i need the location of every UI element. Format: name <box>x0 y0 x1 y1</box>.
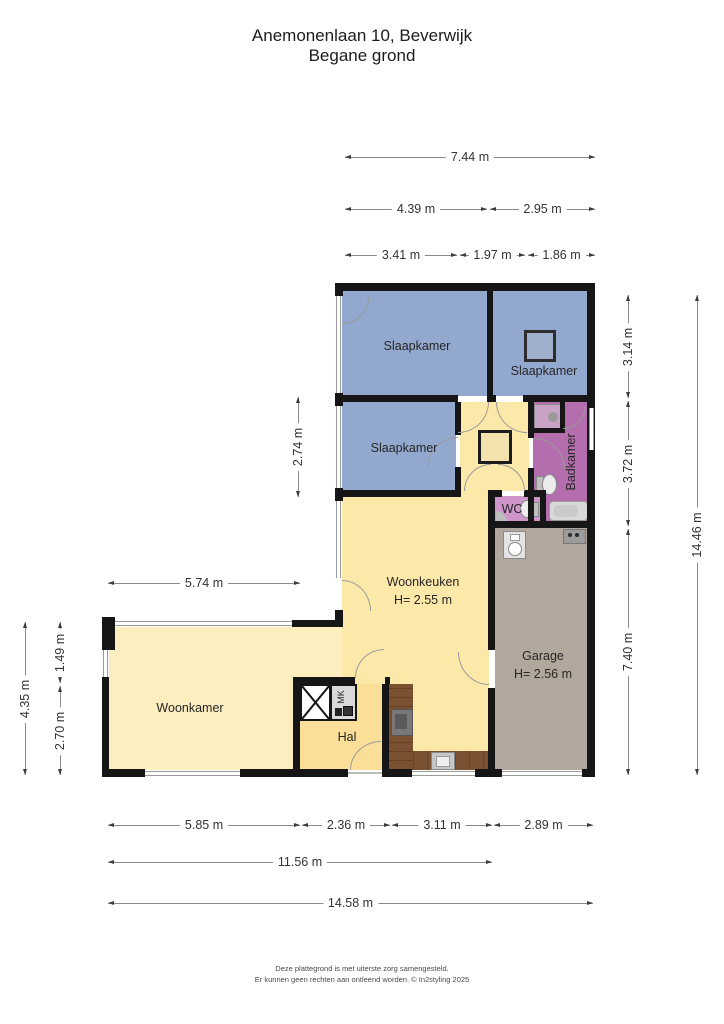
window <box>336 296 341 393</box>
dim-bottom-woonkamer: 5.85 m <box>108 817 300 833</box>
title-floor: Begane grond <box>0 46 724 66</box>
wall <box>587 283 595 777</box>
wall <box>102 677 109 777</box>
wall <box>488 490 495 650</box>
dim-top-bath: 1.86 m <box>528 247 595 263</box>
dim-left-lower: 2.70 m <box>52 686 68 775</box>
dim-bottom-total: 14.58 m <box>108 895 593 911</box>
label-slaapkamer-3: Slaapkamer <box>371 441 438 455</box>
wall <box>528 402 534 438</box>
wall <box>523 395 595 402</box>
label-garage: Garage <box>522 649 564 663</box>
title-address: Anemonenlaan 10, Beverwijk <box>0 26 724 46</box>
wall <box>382 769 412 777</box>
stove-icon <box>391 709 413 736</box>
label-mk: MK <box>336 690 346 704</box>
label-wc: WC <box>502 502 523 516</box>
window <box>336 501 341 578</box>
window <box>103 650 108 677</box>
label-woonkeuken-height: H= 2.55 m <box>394 593 452 607</box>
kitchen-sink-icon <box>431 752 455 770</box>
wall <box>524 490 546 497</box>
wall <box>102 617 115 650</box>
wall <box>292 620 342 627</box>
wall <box>335 395 458 402</box>
shower-icon <box>534 404 562 430</box>
dim-top-bed1: 3.41 m <box>345 247 457 263</box>
wall <box>335 490 461 497</box>
wall <box>487 290 493 395</box>
window <box>145 771 240 776</box>
wall <box>382 684 389 769</box>
dim-right-total: 14.46 m <box>689 295 705 775</box>
dim-bottom-mid: 11.56 m <box>108 854 492 870</box>
wall <box>240 769 348 777</box>
dim-left-total: 4.35 m <box>17 622 33 775</box>
dim-left-window: 1.49 m <box>52 622 68 683</box>
wall <box>534 428 565 433</box>
label-woonkeuken: Woonkeuken <box>387 575 460 589</box>
label-badkamer: Badkamer <box>564 434 578 491</box>
washing-machine-icon <box>503 531 526 559</box>
label-hal: Hal <box>338 730 357 744</box>
label-slaapkamer-2: Slaapkamer <box>511 364 578 378</box>
window <box>589 408 594 450</box>
window <box>502 771 582 776</box>
wall <box>488 688 495 769</box>
dim-top-hall: 1.97 m <box>460 247 525 263</box>
wall <box>495 521 595 528</box>
wall <box>582 769 595 777</box>
dim-top-total: 7.44 m <box>345 149 595 165</box>
gas-meter-icon <box>343 706 353 716</box>
window <box>115 621 292 626</box>
window <box>412 771 475 776</box>
floor-plan-page: Anemonenlaan 10, Beverwijk Begane grond <box>0 0 724 1024</box>
dim-bottom-garage: 2.89 m <box>494 817 593 833</box>
wall <box>385 677 390 684</box>
meter-cabinet-x-icon <box>300 684 331 721</box>
footer-line-2: Er kunnen geen rechten aan ontleend word… <box>0 974 724 985</box>
wall <box>293 677 355 684</box>
page-title: Anemonenlaan 10, Beverwijk Begane grond <box>0 26 724 66</box>
wall <box>475 769 502 777</box>
dim-right-garage: 7.40 m <box>620 529 636 775</box>
footer-line-1: Deze plattegrond is met uiterste zorg sa… <box>0 963 724 974</box>
dim-right-bed: 3.14 m <box>620 295 636 398</box>
window <box>336 406 341 488</box>
wall <box>455 467 461 492</box>
label-garage-height: H= 2.56 m <box>514 667 572 681</box>
dim-top-left: 4.39 m <box>345 201 487 217</box>
label-slaapkamer-1: Slaapkamer <box>384 339 451 353</box>
wall <box>335 283 595 291</box>
wall <box>102 769 145 777</box>
footer-disclaimer: Deze plattegrond is met uiterste zorg sa… <box>0 963 724 985</box>
loft-hatch-icon <box>478 430 512 464</box>
dim-right-mid: 3.72 m <box>620 401 636 526</box>
wall <box>487 395 496 402</box>
dim-top-right: 2.95 m <box>490 201 595 217</box>
dim-bottom-hal: 2.36 m <box>302 817 390 833</box>
wall <box>335 283 343 296</box>
dim-bottom-keuken: 3.11 m <box>392 817 492 833</box>
dim-left-keuken: 5.74 m <box>108 575 300 591</box>
roof-window-icon <box>524 330 556 362</box>
dim-left-bed3: 2.74 m <box>290 397 306 497</box>
front-door-sill <box>348 772 382 774</box>
bathtub-icon <box>549 501 588 521</box>
wall <box>293 677 300 769</box>
ventilation-unit-icon <box>563 529 586 544</box>
label-woonkamer: Woonkamer <box>156 701 223 715</box>
electric-meter-icon <box>335 708 342 716</box>
